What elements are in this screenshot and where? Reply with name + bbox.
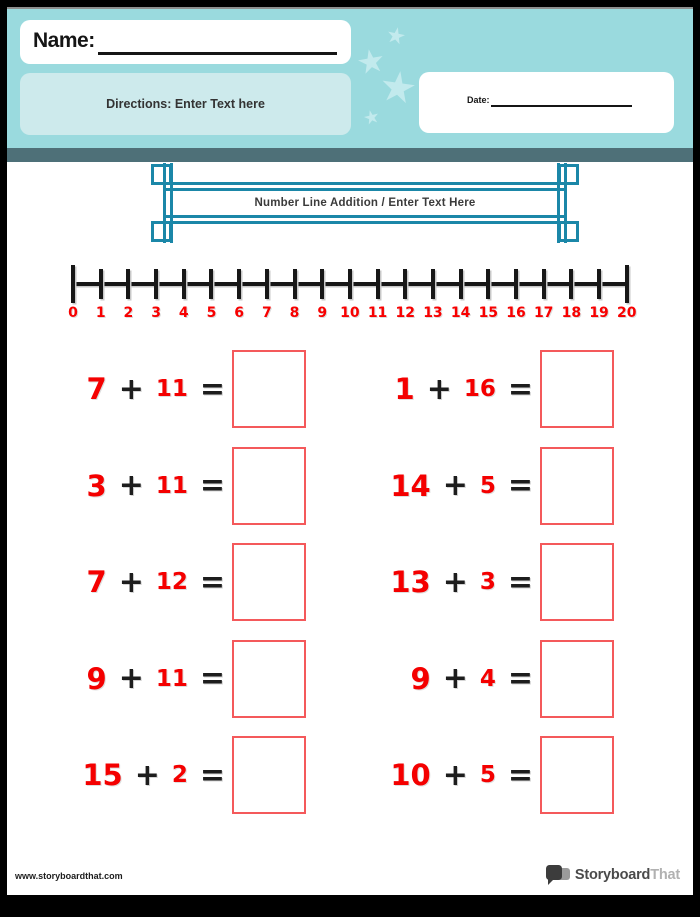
plus-sign: +: [119, 372, 144, 407]
banner-frame-line: [165, 221, 565, 224]
banner-frame-line: [165, 215, 565, 218]
number-line-cell: 7: [257, 269, 277, 321]
tick-mark: [376, 269, 380, 299]
plus-sign: +: [443, 565, 468, 600]
equals-sign: =: [508, 565, 533, 600]
tick-label: 16: [506, 305, 525, 321]
tick-mark: [431, 269, 435, 299]
equals-sign: =: [508, 372, 533, 407]
banner-frame-line: [165, 188, 565, 191]
problem-row: 7+11=: [97, 349, 306, 429]
title-banner: Number Line Addition / Enter Text Here: [150, 163, 580, 243]
operand-b: 2: [172, 762, 188, 788]
number-line-cell: 14: [451, 269, 471, 321]
problems-column-left: 7+11=3+11=7+12=9+11=15+2=: [97, 349, 306, 832]
equals-sign: =: [200, 758, 225, 793]
tick-label: 20: [617, 305, 636, 321]
plus-sign: +: [119, 661, 144, 696]
directions-box[interactable]: Directions: Enter Text here: [20, 73, 351, 135]
tick-mark: [154, 269, 158, 299]
operand-a: 7: [87, 372, 107, 406]
tick-mark: [182, 269, 186, 299]
divider-bar: [7, 148, 693, 162]
answer-box[interactable]: [232, 350, 306, 428]
number-line-cell: 4: [174, 269, 194, 321]
tick-mark: [320, 269, 324, 299]
tick-label: 12: [396, 305, 415, 321]
number-line-cell: 19: [589, 269, 609, 321]
number-line-cell: 9: [312, 269, 332, 321]
tick-label: 14: [451, 305, 470, 321]
tick-label: 5: [207, 305, 217, 321]
problem-row: 9+11=: [97, 639, 306, 719]
answer-box[interactable]: [232, 640, 306, 718]
tick-label: 6: [234, 305, 244, 321]
tick-mark: [403, 269, 407, 299]
date-fill-line[interactable]: [491, 105, 632, 107]
number-line-cell: 10: [340, 269, 360, 321]
operand-b: 11: [156, 666, 188, 692]
number-line-cell: 3: [146, 269, 166, 321]
number-line-cell: 18: [561, 269, 581, 321]
logo-storyboard: Storyboard: [575, 867, 650, 883]
tick-label: 17: [534, 305, 553, 321]
tick-mark: [542, 269, 546, 299]
tick-mark: [597, 269, 601, 299]
tick-mark: [293, 269, 297, 299]
banner-frame-corner: [558, 164, 579, 185]
problem-row: 15+2=: [97, 735, 306, 815]
tick-mark: [71, 265, 75, 303]
operand-b: 4: [480, 666, 496, 692]
equals-sign: =: [200, 565, 225, 600]
problem-row: 7+12=: [97, 542, 306, 622]
star-icon: [379, 69, 417, 107]
equals-sign: =: [508, 468, 533, 503]
plus-sign: +: [443, 468, 468, 503]
number-line-cell: 15: [478, 269, 498, 321]
answer-box[interactable]: [540, 350, 614, 428]
number-line-cell: 12: [395, 269, 415, 321]
number-line-cell: 1: [91, 269, 111, 321]
number-line-cell: 17: [534, 269, 554, 321]
operand-b: 3: [480, 569, 496, 595]
answer-box[interactable]: [232, 447, 306, 525]
star-icon: [385, 25, 406, 46]
equals-sign: =: [200, 661, 225, 696]
tick-label: 1: [96, 305, 106, 321]
worksheet-sheet: Name: Directions: Enter Text here Date:: [7, 7, 693, 895]
tick-label: 18: [562, 305, 581, 321]
plus-sign: +: [443, 758, 468, 793]
number-line-cell: 8: [285, 269, 305, 321]
star-icon: [362, 108, 380, 126]
name-fill-line[interactable]: [98, 52, 337, 55]
plus-sign: +: [427, 372, 452, 407]
number-line-cell: 0: [63, 269, 83, 321]
tick-label: 10: [340, 305, 359, 321]
problems-column-right: 1+16=14+5=13+3=9+4=10+5=: [405, 349, 614, 832]
tick-label: 9: [317, 305, 327, 321]
number-line-cell: 20: [617, 269, 637, 321]
date-label: Date:: [467, 95, 490, 105]
tick-mark: [209, 269, 213, 299]
problem-row: 3+11=: [97, 446, 306, 526]
problems-section: 7+11=3+11=7+12=9+11=15+2= 1+16=14+5=13+3…: [7, 349, 693, 841]
number-line-cell: 6: [229, 269, 249, 321]
operand-a: 13: [390, 565, 430, 599]
logo-text: StoryboardThat: [575, 867, 680, 883]
operand-b: 11: [156, 473, 188, 499]
tick-mark: [348, 269, 352, 299]
problem-row: 1+16=: [405, 349, 614, 429]
banner-frame-line: [165, 182, 565, 185]
problem-row: 9+4=: [405, 639, 614, 719]
tick-label: 4: [179, 305, 189, 321]
worksheet-page: Name: Directions: Enter Text here Date:: [0, 0, 700, 917]
operand-a: 15: [82, 758, 122, 792]
plus-sign: +: [119, 565, 144, 600]
tick-label: 0: [68, 305, 78, 321]
tick-mark: [486, 269, 490, 299]
operand-a: 9: [411, 662, 431, 696]
tick-label: 19: [589, 305, 608, 321]
tick-mark: [126, 269, 130, 299]
tick-mark: [514, 269, 518, 299]
equals-sign: =: [200, 372, 225, 407]
problem-row: 10+5=: [405, 735, 614, 815]
tick-label: 13: [423, 305, 442, 321]
directions-text: Directions: Enter Text here: [106, 97, 265, 111]
speech-bubble-icon: [546, 865, 570, 886]
tick-mark: [237, 269, 241, 299]
header: Name: Directions: Enter Text here Date:: [7, 9, 693, 148]
tick-label: 7: [262, 305, 272, 321]
operand-a: 9: [87, 662, 107, 696]
tick-label: 3: [151, 305, 161, 321]
tick-mark: [569, 269, 573, 299]
number-line-cell: 11: [368, 269, 388, 321]
equals-sign: =: [200, 468, 225, 503]
answer-box[interactable]: [232, 543, 306, 621]
equals-sign: =: [508, 758, 533, 793]
operand-a: 7: [87, 565, 107, 599]
tick-mark: [459, 269, 463, 299]
plus-sign: +: [119, 468, 144, 503]
tick-mark: [265, 269, 269, 299]
footer-url: www.storyboardthat.com: [15, 871, 123, 881]
answer-box[interactable]: [540, 736, 614, 814]
operand-b: 16: [464, 376, 496, 402]
storyboardthat-logo: StoryboardThat: [546, 863, 680, 887]
number-line-cell: 2: [118, 269, 138, 321]
problem-row: 14+5=: [405, 446, 614, 526]
tick-mark: [99, 269, 103, 299]
operand-a: 10: [390, 758, 430, 792]
tick-mark: [625, 265, 629, 303]
tick-label: 11: [368, 305, 387, 321]
operand-a: 14: [390, 469, 430, 503]
number-line-cell: 5: [201, 269, 221, 321]
problem-row: 13+3=: [405, 542, 614, 622]
operand-b: 11: [156, 376, 188, 402]
logo-that: That: [650, 867, 680, 883]
name-label: Name:: [33, 29, 95, 53]
star-icon: [356, 47, 386, 77]
number-line-cell: 13: [423, 269, 443, 321]
banner-frame-corner: [558, 221, 579, 242]
operand-b: 5: [480, 762, 496, 788]
banner-frame-corner: [151, 164, 172, 185]
plus-sign: +: [443, 661, 468, 696]
operand-b: 12: [156, 569, 188, 595]
name-field[interactable]: Name:: [20, 20, 351, 64]
operand-a: 3: [87, 469, 107, 503]
answer-box[interactable]: [232, 736, 306, 814]
answer-box[interactable]: [540, 447, 614, 525]
tick-label: 8: [290, 305, 300, 321]
number-line-cell: 16: [506, 269, 526, 321]
number-line: 01234567891011121314151617181920: [63, 269, 637, 327]
date-field[interactable]: Date:: [419, 72, 674, 133]
answer-box[interactable]: [540, 640, 614, 718]
operand-b: 5: [480, 473, 496, 499]
banner-frame-corner: [151, 221, 172, 242]
equals-sign: =: [508, 661, 533, 696]
operand-a: 1: [395, 372, 415, 406]
answer-box[interactable]: [540, 543, 614, 621]
plus-sign: +: [135, 758, 160, 793]
worksheet-title[interactable]: Number Line Addition / Enter Text Here: [150, 197, 580, 209]
tick-label: 2: [124, 305, 134, 321]
tick-label: 15: [479, 305, 498, 321]
number-line-ticks: 01234567891011121314151617181920: [63, 269, 637, 321]
